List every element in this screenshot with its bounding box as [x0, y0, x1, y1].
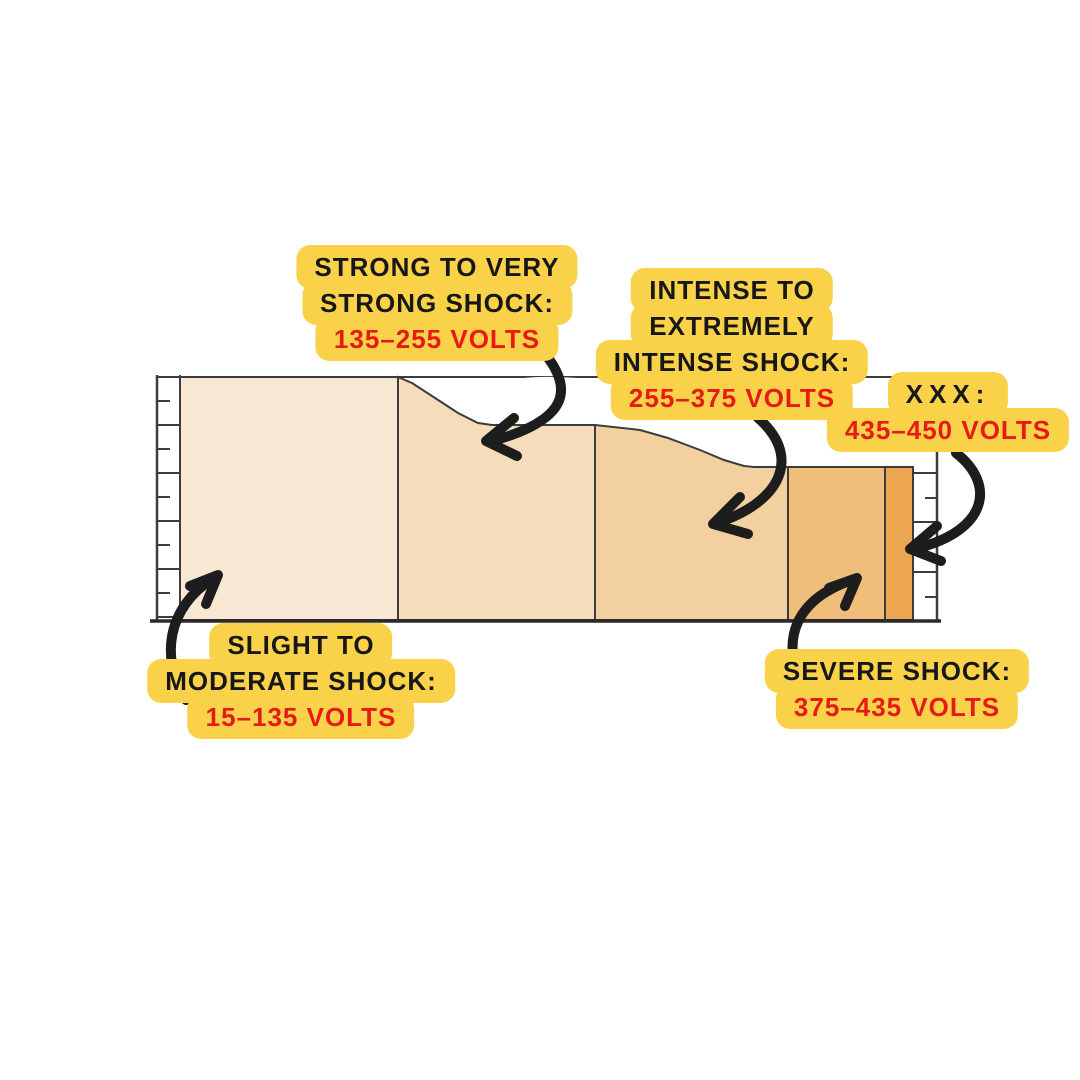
callout-strong-volts: 135–255 VOLTS — [316, 317, 558, 361]
arrow-xxx-to-segment5 — [910, 453, 980, 561]
callout-xxx-volts: 435–450 VOLTS — [827, 408, 1069, 452]
segment-strong-to-very-strong — [398, 377, 595, 620]
callout-slight-volts: 15–135 VOLTS — [188, 695, 415, 739]
segment-severe — [788, 467, 885, 620]
infographic-canvas: STRONG TO VERY STRONG SHOCK: 135–255 VOL… — [0, 0, 1080, 1080]
callout-intense-volts: 255–375 VOLTS — [611, 376, 853, 420]
callout-strong-shock: STRONG TO VERY STRONG SHOCK: 135–255 VOL… — [296, 249, 577, 357]
shock-scale-chart — [0, 0, 1080, 1080]
segment-intense-to-extremely-intense — [595, 425, 788, 620]
callout-severe-volts: 375–435 VOLTS — [776, 685, 1018, 729]
callout-slight-shock: SLIGHT TO MODERATE SHOCK: 15–135 VOLTS — [147, 627, 455, 735]
left-axis-ladder — [157, 375, 180, 621]
callout-severe-shock: SEVERE SHOCK: 375–435 VOLTS — [765, 653, 1029, 725]
callout-xxx: XXX: 435–450 VOLTS — [827, 376, 1069, 448]
